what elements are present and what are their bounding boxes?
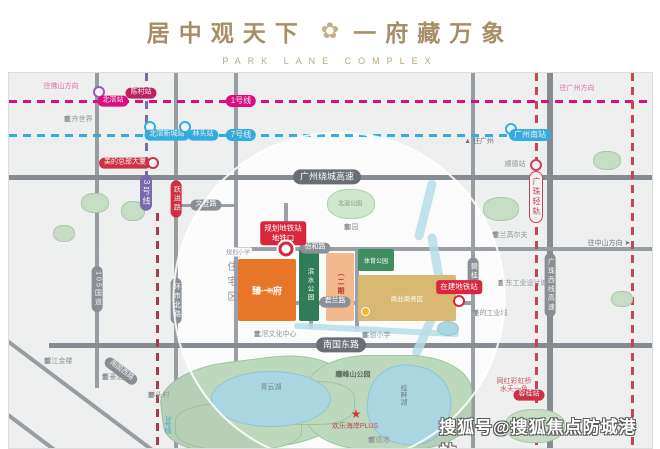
poi-design-city: 广东工业设计城: [499, 280, 504, 286]
planned-school-tag: 规划小学: [224, 248, 252, 257]
subtitle: PARK LANE COMPLEX: [0, 56, 660, 66]
park-blob-2: [53, 225, 75, 242]
happy-coast-label: 欢乐海岸PLUS: [332, 421, 378, 431]
title-left: 居中观天下: [147, 14, 307, 48]
sales-center-pin-icon: [361, 307, 370, 316]
poi-flower-world: 花卉世界: [65, 116, 70, 122]
line7-station-gzsouth: 广州南站: [509, 129, 551, 141]
metro-under-construction-tag: 在建地铁站: [436, 280, 482, 294]
block-green-2-label: 体育公园: [364, 256, 388, 265]
line1-direction-left: 往佛山方向: [44, 81, 79, 91]
metro-line3-lower: [156, 213, 159, 448]
location-map: 1号线 北滘站 陈村站 往佛山方向 往广州方向 7号线 北滘新城站 林头站 广州…: [8, 72, 653, 449]
midea-hq-pill: 美的总部大厦: [99, 158, 151, 169]
lake-qingyun-label: 青云湖: [261, 382, 282, 392]
light-rail-badge: 广珠轻轨: [529, 171, 543, 223]
poi-midea-industry: 美的工业城: [473, 310, 478, 316]
park-blob-6: [593, 151, 621, 170]
direction-to-guangzhou: ▲ 往广州: [464, 136, 494, 146]
road-label-wendeng: 文登路: [191, 200, 222, 211]
road-label-nanguo-west: 南国西路: [103, 355, 140, 386]
block-peach-phase2: （二期）: [326, 253, 354, 321]
poi-lintou-village: 林头村: [149, 392, 154, 398]
poi-culture-center: 北滘文化中心: [255, 331, 260, 337]
light-rail-shunde-icon: [530, 159, 542, 171]
park-blob-1: [81, 193, 109, 213]
river-segment-1: [414, 179, 438, 241]
direction-to-zhongshan: 往中山方向 ➤: [588, 238, 631, 248]
road-label-nanguo-east: 南国东路: [316, 337, 366, 352]
title-right: 一府藏万象: [353, 14, 513, 48]
metro-line3-badge: 3号线: [140, 175, 152, 211]
residential-zone-label: 住宅区: [223, 261, 238, 306]
block-green-strip-label: 滨水公园: [304, 268, 314, 302]
line7-station-lintou: 林头站: [188, 130, 219, 141]
lake-guipan-label: 桂畔湖: [398, 385, 408, 406]
poi-hotel: 万豪酒店: [103, 374, 108, 380]
light-rail-line-east: [631, 73, 634, 448]
road-label-g105: 105国道: [92, 266, 103, 312]
block-green-2: 体育公园: [358, 249, 394, 271]
poi-bijiang-jinlou: 碧江金楼: [45, 358, 50, 364]
line1-direction-right: 往广州方向: [560, 83, 595, 93]
shunfeng-park-label: 顺峰山公园: [336, 371, 343, 378]
block-orange-phase1: 臻·一府 （一期）: [238, 259, 296, 321]
header: 居中观天下 ✿ 一府藏万象 PARK LANE COMPLEX: [0, 14, 660, 66]
project-phase1: （一期）: [255, 286, 279, 295]
road-label-ring-expwy: 广州绕城高速: [293, 169, 361, 184]
light-rail-shunde-station: 顺德站: [505, 159, 526, 169]
metro-line3-badge-bottom: 3号线: [162, 416, 172, 434]
road-label-yuejin: 跃进路: [171, 181, 182, 218]
park-blob-8: [611, 291, 633, 307]
road-vertical-3: [234, 73, 238, 385]
park-blob-5: [483, 197, 519, 221]
rainbow-bridge-line2: 水天一色: [500, 384, 528, 394]
star-marker-icon: ★: [351, 408, 362, 420]
block-tan-label: 商业商务区: [391, 293, 424, 303]
poi-shunde-port: 顺德港: [369, 437, 374, 443]
road-label-gzwest: 广珠西线高速: [545, 253, 556, 317]
road-label-huanshi: 环市北路: [171, 278, 182, 324]
poi-golf: 君兰高尔夫: [493, 232, 498, 238]
midea-hq-metro-icon: [147, 157, 159, 169]
metro-under-construction-icon: [453, 295, 465, 307]
metro-line7: [9, 134, 514, 137]
metro-line7-badge: 7号线: [226, 129, 256, 141]
poi-primary-school: 实验小学: [363, 332, 368, 338]
road-diagonal-2: [8, 391, 148, 449]
poi-heyuan: 和园: [345, 224, 350, 230]
line1-station-chencun: 陈村站: [126, 88, 157, 99]
planned-subway-line1: 规划地铁站: [264, 223, 302, 233]
road-label-junlan: 君兰路: [320, 297, 351, 308]
flower-emblem-icon: ✿: [321, 20, 339, 42]
watermark: 搜狐号@搜狐焦点防城港站: [439, 413, 652, 449]
metro-line1-badge: 1号线: [226, 95, 256, 107]
beijiao-park-label: 北滘公园: [338, 199, 362, 208]
poster-canvas: 居中观天下 ✿ 一府藏万象 PARK LANE COMPLEX: [0, 0, 660, 449]
pond: [437, 321, 459, 336]
line1-station-beijiao: 北滘站: [98, 96, 129, 107]
project-location-marker: [279, 242, 294, 257]
road-vertical-1: [95, 73, 99, 388]
block-green-strip: 滨水公园: [299, 249, 319, 321]
lake-qingyun: [211, 371, 331, 427]
